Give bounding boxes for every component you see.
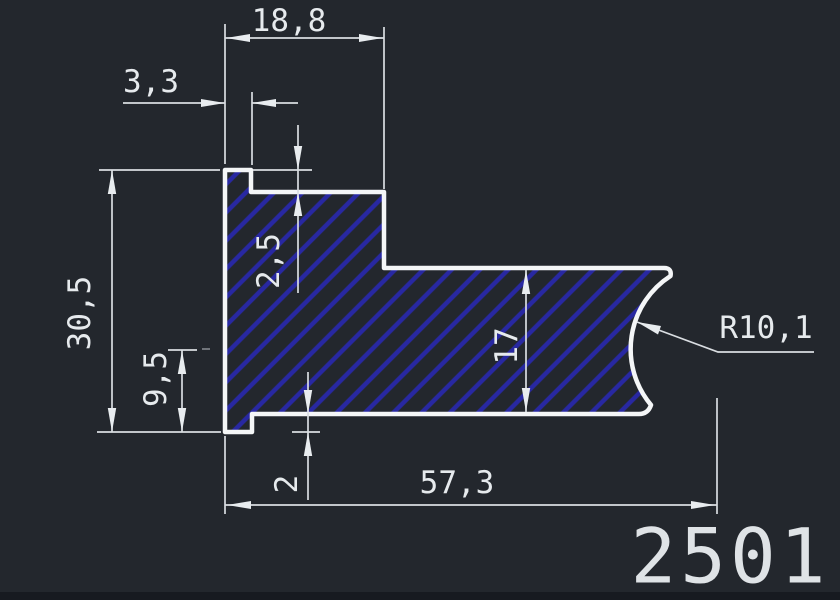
dimension-label: 9,5 bbox=[138, 351, 174, 407]
cad-viewport: 18,8 3,3 2,5 30,5 bbox=[0, 0, 840, 600]
dimension-label: R10,1 bbox=[719, 310, 812, 346]
dimension-label: 30,5 bbox=[62, 276, 98, 351]
dimension-label: 18,8 bbox=[252, 3, 327, 39]
dimension-label: 17 bbox=[489, 327, 525, 364]
dimension-label: 3,3 bbox=[123, 64, 179, 100]
cad-drawing: 18,8 3,3 2,5 30,5 bbox=[0, 0, 840, 600]
dimension-label: 57,3 bbox=[420, 465, 495, 501]
dimension-label: 2 bbox=[269, 475, 305, 494]
part-number-label: 2501 bbox=[630, 512, 829, 600]
dimension-label: 2,5 bbox=[251, 233, 287, 289]
